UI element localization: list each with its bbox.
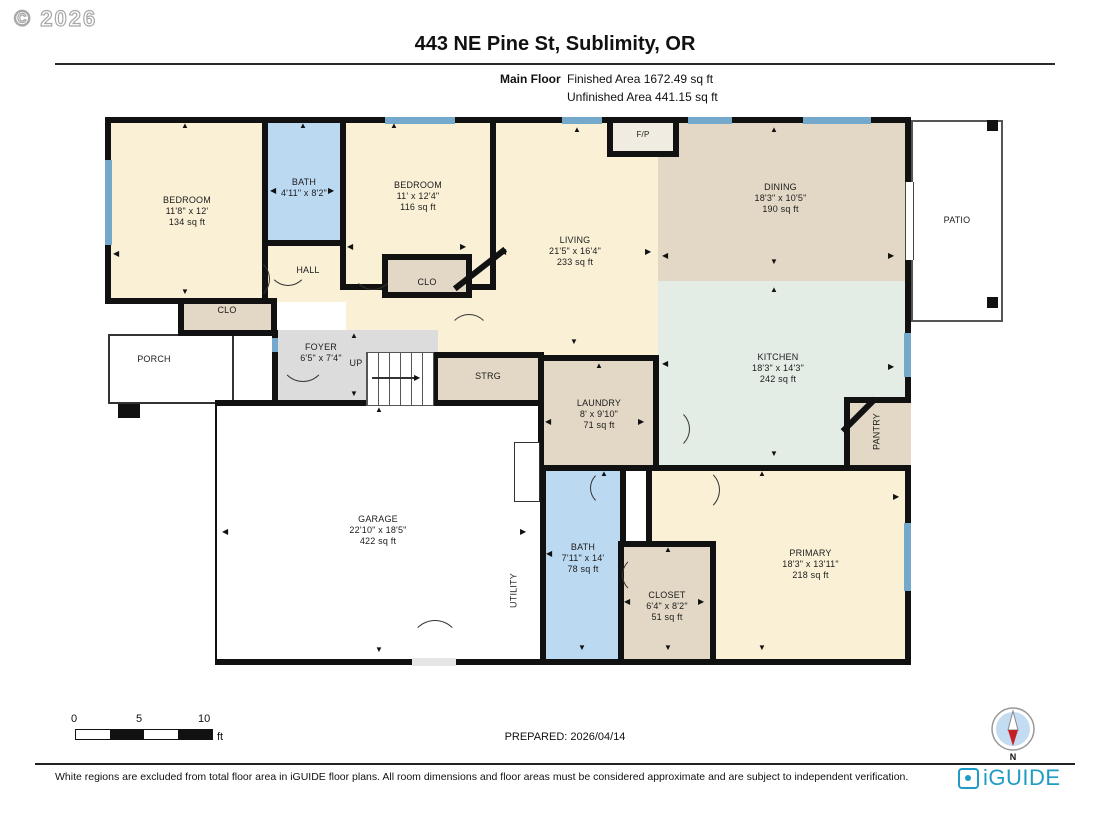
- dimension-arrow-icon: [375, 646, 383, 654]
- dimension-arrow-icon: [888, 363, 894, 371]
- compass-north-label: N: [1000, 752, 1026, 762]
- dimension-arrow-icon: [546, 550, 552, 558]
- dimension-arrow-icon: [113, 250, 119, 258]
- dimension-arrow-icon: [578, 644, 586, 652]
- dimension-arrow-icon: [698, 598, 704, 606]
- room-area: 51 sq ft: [620, 612, 714, 623]
- room-name: DINING: [708, 182, 853, 193]
- room-dims: 22'10" x 18'5": [308, 525, 448, 536]
- dimension-arrow-icon: [181, 288, 189, 296]
- unfinished-area: Unfinished Area 441.15 sq ft: [567, 90, 718, 104]
- room-label: CLO: [182, 305, 272, 316]
- door-arc: [410, 620, 460, 670]
- dimension-arrow-icon: [888, 252, 894, 260]
- room-dims: 21'5" x 16'4": [500, 246, 650, 257]
- room-dims: 7'11" x 14': [542, 553, 624, 564]
- scale-tick-10: 10: [198, 713, 210, 725]
- dimension-arrow-icon: [375, 406, 383, 414]
- dimension-arrow-icon: [893, 493, 899, 501]
- stairs-up-label: UP: [344, 358, 368, 369]
- dimension-arrow-icon: [570, 338, 578, 346]
- dimension-arrow-icon: [347, 243, 353, 251]
- dimension-arrow-icon: [758, 644, 766, 652]
- up-text: UP: [344, 358, 368, 369]
- scale-unit: ft: [217, 731, 223, 743]
- dimension-arrow-icon: [520, 528, 526, 536]
- dimension-arrow-icon: [573, 126, 581, 134]
- room-area: 116 sq ft: [348, 202, 488, 213]
- dimension-arrow-icon: [181, 122, 189, 130]
- disclaimer-text: White regions are excluded from total fl…: [55, 771, 908, 783]
- window: [688, 117, 732, 124]
- room-label: PANTRY: [872, 402, 883, 462]
- room-name: PANTRY: [872, 402, 883, 462]
- room-label: BEDROOM 11' x 12'4" 116 sq ft: [348, 180, 488, 213]
- room-clo-hall: [178, 298, 277, 336]
- patio-post: [987, 297, 998, 308]
- dimension-arrow-icon: [545, 418, 551, 426]
- room-clo-bedroom2: [382, 254, 472, 298]
- dimension-arrow-icon: [270, 187, 276, 195]
- room-dims: 18'3" x 13'11": [738, 559, 883, 570]
- page-title: 443 NE Pine St, Sublimity, OR: [0, 33, 1110, 56]
- dimension-arrow-icon: [770, 286, 778, 294]
- room-label: HALL: [272, 265, 344, 276]
- copyright-watermark: © 2026: [14, 6, 97, 32]
- finished-area: Finished Area 1672.49 sq ft: [567, 72, 713, 86]
- floorplan-page: © 2026 443 NE Pine St, Sublimity, OR Mai…: [0, 0, 1110, 833]
- window: [803, 117, 871, 124]
- window: [105, 160, 112, 245]
- door-arc: [590, 470, 626, 506]
- room-area: 134 sq ft: [117, 217, 257, 228]
- room-name: CLO: [384, 277, 470, 288]
- room-name: BATH: [542, 542, 624, 553]
- dimension-arrow-icon: [770, 258, 778, 266]
- dimension-arrow-icon: [328, 187, 334, 195]
- room-dims: 11' x 12'4": [348, 191, 488, 202]
- room-label: PRIMARY 18'3" x 13'11" 218 sq ft: [738, 548, 883, 581]
- room-area: 78 sq ft: [542, 564, 624, 575]
- window: [562, 117, 602, 124]
- room-name: PRIMARY: [738, 548, 883, 559]
- room-name: GARAGE: [308, 514, 448, 525]
- room-name: KITCHEN: [698, 352, 858, 363]
- room-name: UTILITY: [509, 561, 520, 621]
- room-label: KITCHEN 18'3" x 14'3" 242 sq ft: [698, 352, 858, 385]
- room-label: PORCH: [110, 354, 198, 365]
- porch-step: [118, 404, 140, 418]
- room-name: FOYER: [278, 342, 364, 353]
- dimension-arrow-icon: [624, 598, 630, 606]
- dimension-arrow-icon: [460, 243, 466, 251]
- room-name: STRG: [438, 371, 538, 382]
- room-name: PATIO: [915, 215, 999, 226]
- prepared-date: PREPARED: 2026/04/14: [455, 731, 675, 743]
- room-label: CLO: [384, 277, 470, 288]
- room-label: BATH 7'11" x 14' 78 sq ft: [542, 542, 624, 575]
- floor-label: Main Floor: [500, 72, 561, 86]
- room-label: LAUNDRY 8' x 9'10" 71 sq ft: [543, 398, 655, 431]
- iguide-logo-text: iGUIDE: [983, 765, 1061, 791]
- door-leaf: [514, 442, 540, 502]
- title-divider: [55, 63, 1055, 65]
- dimension-arrow-icon: [662, 360, 668, 368]
- stair-direction-line: [372, 377, 416, 379]
- dimension-arrow-icon: [664, 546, 672, 554]
- window: [904, 333, 911, 377]
- patio-door-opening: [905, 182, 914, 260]
- room-name: BEDROOM: [117, 195, 257, 206]
- patio-post: [987, 120, 998, 131]
- dimension-arrow-icon: [350, 390, 358, 398]
- door-arc: [676, 468, 720, 512]
- scale-tick-0: 0: [71, 713, 77, 725]
- dimension-arrow-icon: [390, 122, 398, 130]
- iguide-logo: iGUIDE: [958, 765, 1061, 791]
- room-label: BEDROOM 11'8" x 12' 134 sq ft: [117, 195, 257, 228]
- room-area: 218 sq ft: [738, 570, 883, 581]
- room-area: 242 sq ft: [698, 374, 858, 385]
- room-label: UTILITY: [509, 561, 520, 621]
- room-name: HALL: [272, 265, 344, 276]
- dimension-arrow-icon: [770, 450, 778, 458]
- room-name: LAUNDRY: [543, 398, 655, 409]
- scale-segment: [76, 730, 110, 739]
- stair-arrow-icon: [414, 374, 420, 382]
- room-dims: 11'8" x 12': [117, 206, 257, 217]
- room-dims: 18'3" x 10'5": [708, 193, 853, 204]
- room-label: GARAGE 22'10" x 18'5" 422 sq ft: [308, 514, 448, 547]
- dimension-arrow-icon: [500, 248, 506, 256]
- dimension-arrow-icon: [600, 470, 608, 478]
- dimension-arrow-icon: [299, 122, 307, 130]
- room-area: 422 sq ft: [308, 536, 448, 547]
- compass: [990, 706, 1036, 752]
- door-arc: [622, 556, 660, 594]
- scale-segment: [110, 730, 144, 739]
- staircase: [366, 352, 434, 406]
- room-label: CLOSET 6'4" x 8'2" 51 sq ft: [620, 590, 714, 623]
- iguide-logo-icon: [958, 768, 979, 789]
- dimension-arrow-icon: [758, 470, 766, 478]
- room-name: LIVING: [500, 235, 650, 246]
- scale-tick-5: 5: [136, 713, 142, 725]
- scale-segment: [144, 730, 178, 739]
- dimension-arrow-icon: [664, 644, 672, 652]
- scale-bar: [75, 729, 213, 740]
- room-dims: 18'3" x 14'3": [698, 363, 858, 374]
- room-porch: [108, 334, 234, 404]
- door-arc: [448, 314, 490, 356]
- window: [904, 523, 911, 591]
- dimension-arrow-icon: [645, 248, 651, 256]
- dimension-arrow-icon: [770, 126, 778, 134]
- room-area: 190 sq ft: [708, 204, 853, 215]
- room-label: DINING 18'3" x 10'5" 190 sq ft: [708, 182, 853, 215]
- room-label: F/P: [607, 129, 679, 140]
- scale-segment: [178, 730, 212, 739]
- door-arc: [228, 258, 270, 300]
- room-area: 233 sq ft: [500, 257, 650, 268]
- room-name: CLO: [182, 305, 272, 316]
- dimension-arrow-icon: [350, 332, 358, 340]
- room-label: PATIO: [915, 215, 999, 226]
- dimension-arrow-icon: [662, 252, 668, 260]
- room-name: BEDROOM: [348, 180, 488, 191]
- dimension-arrow-icon: [638, 418, 644, 426]
- room-name: PORCH: [110, 354, 198, 365]
- footer-divider: [35, 763, 1075, 765]
- room-label: STRG: [438, 371, 538, 382]
- room-label: LIVING 21'5" x 16'4" 233 sq ft: [500, 235, 650, 268]
- room-name: F/P: [607, 129, 679, 140]
- dimension-arrow-icon: [222, 528, 228, 536]
- dimension-arrow-icon: [595, 362, 603, 370]
- compass-icon: [990, 706, 1036, 752]
